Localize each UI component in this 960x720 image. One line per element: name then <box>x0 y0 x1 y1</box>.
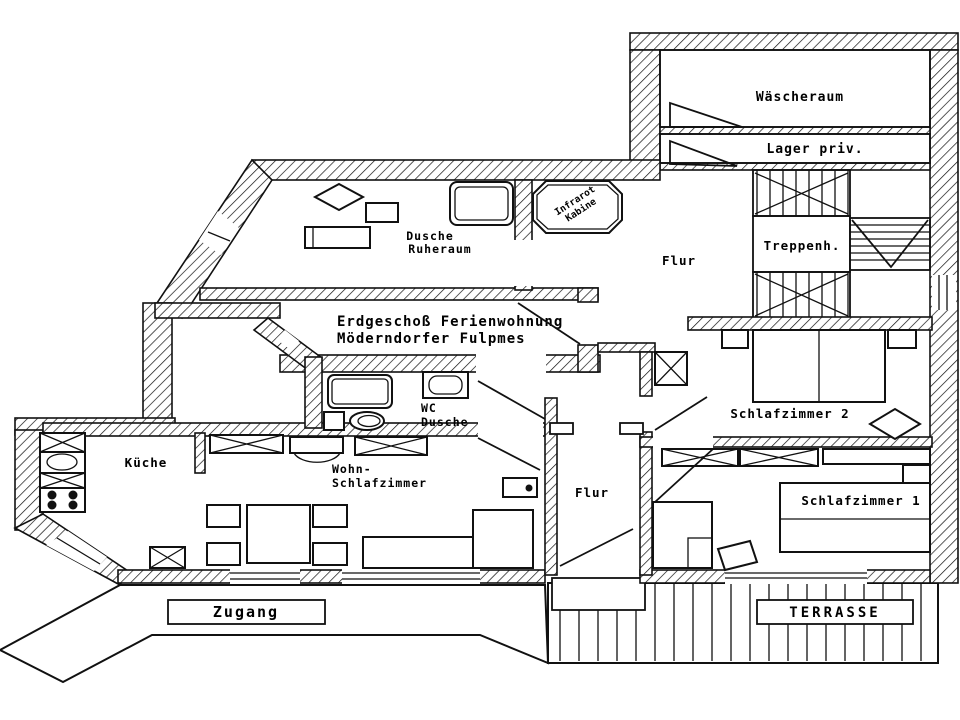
schlafzimmer2-room: Schlafzimmer 2 <box>655 330 920 439</box>
stair-direction-lines <box>755 173 848 214</box>
wall <box>630 33 958 50</box>
room-label-wc-dusche: Dusche <box>421 415 469 429</box>
door-leaf <box>655 397 707 430</box>
wall <box>598 343 655 352</box>
wall <box>660 127 930 134</box>
wall <box>578 288 598 302</box>
wall <box>252 160 660 180</box>
rug <box>718 541 757 570</box>
shelf <box>823 449 930 464</box>
wall <box>195 433 205 473</box>
wall <box>43 423 545 436</box>
flur-lower: Flur <box>560 485 633 566</box>
window-south <box>342 569 480 584</box>
window-south <box>725 569 867 584</box>
wall <box>15 430 43 530</box>
room-label-wohn: Wohn- <box>332 462 372 476</box>
sideboard <box>355 437 427 455</box>
kitchen-cabinet <box>40 433 85 452</box>
wall <box>930 50 958 583</box>
table-diamond <box>315 184 363 210</box>
door-opening <box>513 240 534 286</box>
chair <box>313 543 347 565</box>
door-threshold <box>550 423 573 434</box>
room-label-treppenhaus: Treppenh. <box>764 238 841 253</box>
floorplan-page: Zugang TERRASSE Wäscheraum Lager priv. T… <box>0 0 960 720</box>
room-label-waescheraum: Wäscheraum <box>756 90 844 105</box>
wall <box>578 345 598 372</box>
tv-unit-knob <box>526 485 533 492</box>
chair <box>207 505 240 527</box>
room-label-kueche: Küche <box>125 455 168 470</box>
nightstand <box>722 330 748 348</box>
wall <box>688 317 932 330</box>
door-leaf <box>560 529 633 566</box>
plan-title-line1: Erdgeschoß Ferienwohnung <box>337 314 563 330</box>
flur-exit-step <box>552 578 645 610</box>
stool <box>366 203 398 222</box>
window-right-wall <box>932 275 956 310</box>
room-outline <box>660 50 930 127</box>
dining-table <box>247 505 310 563</box>
shower-tray <box>328 375 392 408</box>
wardrobe <box>662 449 738 466</box>
window-south <box>230 569 300 584</box>
door-leaf <box>478 438 540 470</box>
sideboard <box>210 435 283 453</box>
waescheraum-room: Wäscheraum Lager priv. <box>660 50 930 166</box>
stair-flight-side <box>850 218 930 270</box>
wall <box>200 288 598 300</box>
door-opening <box>653 435 713 449</box>
room-label-flur-upper: Flur <box>662 253 696 268</box>
wall <box>305 357 322 428</box>
wardrobe <box>655 352 687 385</box>
stair-direction-lines <box>755 274 848 316</box>
room-label-schlafzimmer2: Schlafzimmer 2 <box>730 406 849 421</box>
kitchen-cabinet <box>40 473 85 488</box>
room-label-wc: WC <box>421 401 437 415</box>
wall-basin-bowl <box>294 453 340 462</box>
outdoor-area: Zugang TERRASSE <box>0 578 938 682</box>
plan-title: Erdgeschoß Ferienwohnung Möderndorfer Fu… <box>337 303 580 347</box>
wall <box>155 303 280 318</box>
door-opening <box>476 353 546 374</box>
zugang-label: Zugang <box>213 603 279 621</box>
bed <box>363 537 473 568</box>
staircase: Treppenh. <box>688 170 932 330</box>
room-label-wohn-schlafzimmer: Schlafzimmer <box>332 476 427 490</box>
lounger <box>305 227 370 248</box>
wohn-schlafzimmer-room: Wohn- Schlafzimmer <box>207 435 540 568</box>
kitchen-cabinet <box>150 547 185 568</box>
dusche-ruheraum-room: Dusche Ruheraum <box>305 182 513 256</box>
toilet-bowl <box>350 412 384 430</box>
shower-tray <box>450 182 513 225</box>
wall <box>630 50 660 170</box>
door-opening <box>478 421 543 438</box>
room-label-schlafzimmer1: Schlafzimmer 1 <box>801 493 920 508</box>
nightstand <box>903 465 930 483</box>
chair <box>207 543 240 565</box>
room-label-ruheraum: Ruheraum <box>408 242 471 256</box>
wall <box>118 570 545 583</box>
wardrobe-band <box>662 449 930 466</box>
room-label-flur-lower: Flur <box>575 485 609 500</box>
floorplan-drawing: Zugang TERRASSE Wäscheraum Lager priv. T… <box>0 0 960 720</box>
stair-treads <box>850 225 930 260</box>
plan-title-line2: Möderndorfer Fulpmes <box>337 331 526 347</box>
room-label-lager: Lager priv. <box>766 142 863 157</box>
nightstand <box>888 330 916 348</box>
wall <box>280 355 600 372</box>
chair <box>313 505 347 527</box>
bed-headboard <box>473 510 533 568</box>
door-threshold <box>620 423 643 434</box>
table <box>653 502 712 568</box>
wall <box>640 352 652 396</box>
wall <box>143 303 172 433</box>
door-leaf <box>478 381 545 419</box>
wardrobe <box>740 449 818 466</box>
rug-diamond <box>870 409 920 439</box>
terrasse-label: TERRASSE <box>789 605 880 621</box>
infrarot-kabine: Infrarot Kabine <box>533 181 622 233</box>
wall-basin <box>290 437 343 453</box>
stove <box>40 488 85 512</box>
wall <box>640 432 652 575</box>
room-label-dusche: Dusche <box>406 229 454 243</box>
door-leaf <box>670 103 742 127</box>
toilet-cistern <box>324 412 344 430</box>
schlafzimmer1-room: Schlafzimmer 1 <box>653 449 930 570</box>
